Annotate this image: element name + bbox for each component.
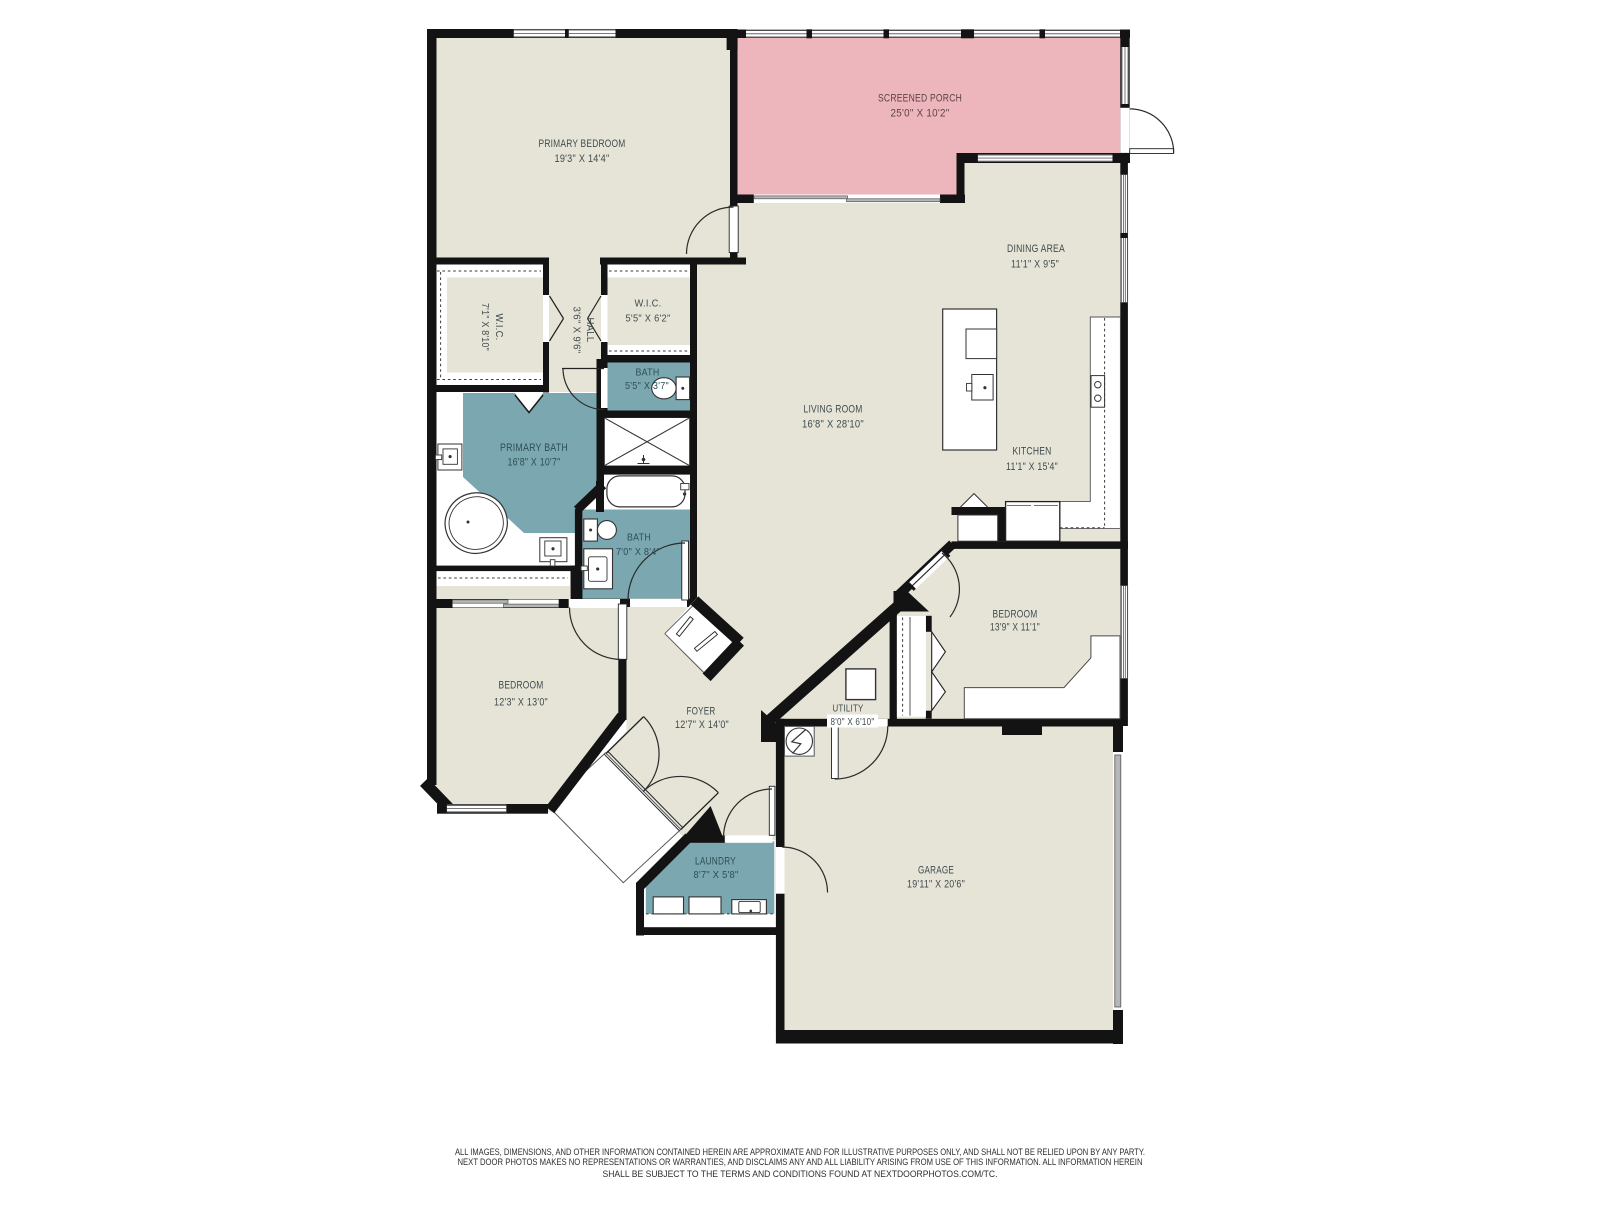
svg-text:W.I.C.: W.I.C. bbox=[493, 314, 505, 341]
svg-text:13'9" X 11'1": 13'9" X 11'1" bbox=[990, 622, 1040, 634]
svg-text:8'0" X 6'10": 8'0" X 6'10" bbox=[831, 717, 875, 728]
svg-text:BEDROOM: BEDROOM bbox=[993, 609, 1038, 621]
svg-text:BEDROOM: BEDROOM bbox=[499, 680, 544, 692]
svg-text:W.I.C.: W.I.C. bbox=[635, 298, 662, 310]
svg-text:25'0" X 10'2": 25'0" X 10'2" bbox=[891, 108, 950, 120]
svg-text:HALL: HALL bbox=[584, 318, 596, 343]
svg-text:12'7" X 14'0": 12'7" X 14'0" bbox=[675, 719, 729, 731]
svg-text:KITCHEN: KITCHEN bbox=[1013, 446, 1052, 458]
svg-text:BATH: BATH bbox=[627, 532, 651, 544]
svg-text:19'3" X 14'4": 19'3" X 14'4" bbox=[555, 153, 610, 165]
svg-text:SCREENED PORCH: SCREENED PORCH bbox=[878, 93, 962, 105]
svg-text:NEXT DOOR PHOTOS MAKES NO REPR: NEXT DOOR PHOTOS MAKES NO REPRESENTATION… bbox=[458, 1157, 1143, 1167]
svg-text:3'6" X 9'6": 3'6" X 9'6" bbox=[571, 307, 582, 354]
svg-text:19'11" X 20'6": 19'11" X 20'6" bbox=[907, 879, 965, 891]
svg-text:DINING AREA: DINING AREA bbox=[1007, 243, 1065, 255]
svg-text:ALL IMAGES, DIMENSIONS, AND OT: ALL IMAGES, DIMENSIONS, AND OTHER INFORM… bbox=[455, 1147, 1145, 1157]
svg-text:FOYER: FOYER bbox=[687, 706, 716, 718]
svg-text:11'1" X 15'4": 11'1" X 15'4" bbox=[1006, 461, 1058, 473]
svg-text:12'3" X 13'0": 12'3" X 13'0" bbox=[494, 697, 548, 709]
svg-text:GARAGE: GARAGE bbox=[918, 865, 954, 877]
svg-text:11'1" X 9'5": 11'1" X 9'5" bbox=[1011, 259, 1059, 271]
svg-text:PRIMARY BEDROOM: PRIMARY BEDROOM bbox=[539, 138, 626, 150]
svg-text:LAUNDRY: LAUNDRY bbox=[695, 856, 736, 868]
svg-text:16'8" X 10'7": 16'8" X 10'7" bbox=[508, 457, 561, 469]
svg-text:LIVING ROOM: LIVING ROOM bbox=[804, 404, 863, 416]
svg-text:16'8" X 28'10": 16'8" X 28'10" bbox=[802, 419, 864, 431]
svg-text:SHALL BE SUBJECT TO THE TERMS: SHALL BE SUBJECT TO THE TERMS AND CONDIT… bbox=[603, 1169, 998, 1179]
svg-text:5'5" X 6'2": 5'5" X 6'2" bbox=[626, 314, 671, 325]
svg-text:5'5" X 3'7": 5'5" X 3'7" bbox=[625, 381, 669, 392]
svg-text:7'0" X 8'4": 7'0" X 8'4" bbox=[616, 547, 660, 558]
svg-text:7'1" X 8'10": 7'1" X 8'10" bbox=[479, 303, 490, 351]
svg-text:UTILITY: UTILITY bbox=[833, 703, 864, 715]
svg-text:PRIMARY BATH: PRIMARY BATH bbox=[500, 442, 568, 454]
svg-text:BATH: BATH bbox=[636, 367, 660, 379]
svg-text:8'7" X 5'8": 8'7" X 5'8" bbox=[694, 870, 739, 881]
